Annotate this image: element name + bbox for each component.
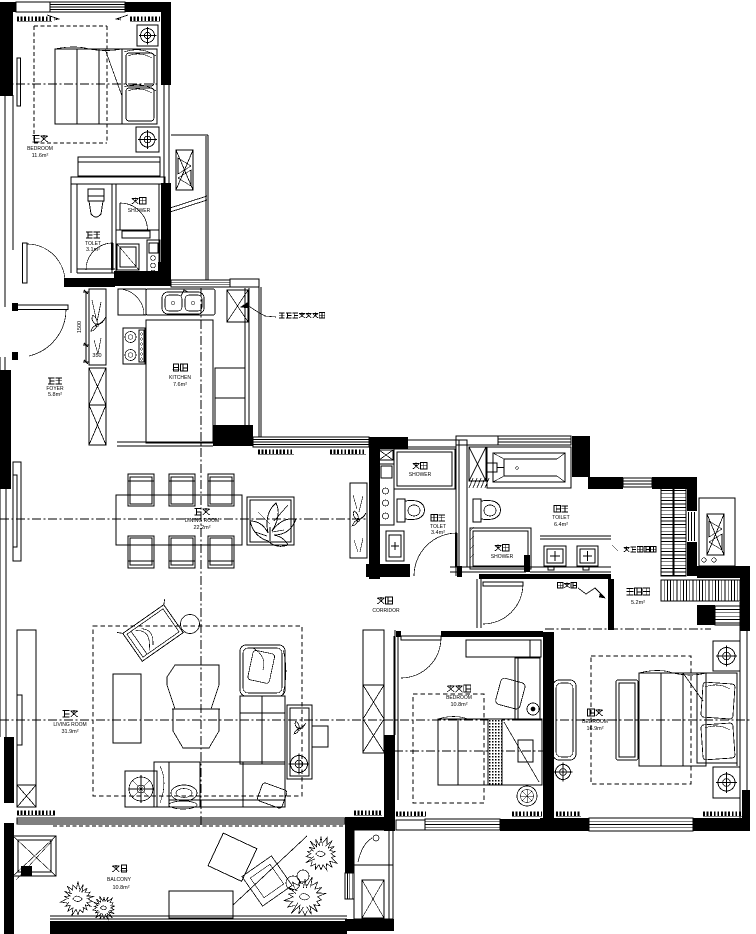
svg-text:3.4m²: 3.4m² <box>431 530 445 536</box>
svg-text:10.8m²: 10.8m² <box>450 702 467 708</box>
svg-text:7.6m²: 7.6m² <box>173 382 187 388</box>
svg-text:SHOWER: SHOWER <box>491 554 514 560</box>
svg-text:CORRIDOR: CORRIDOR <box>372 608 400 614</box>
svg-text:5.2m²: 5.2m² <box>631 600 645 606</box>
svg-text:SHOWER: SHOWER <box>409 472 432 478</box>
svg-text:LIVING ROOM: LIVING ROOM <box>53 722 86 728</box>
svg-text:5.8m²: 5.8m² <box>48 392 62 398</box>
svg-text:BALCONY: BALCONY <box>107 877 132 883</box>
svg-text:31.9m²: 31.9m² <box>61 729 78 735</box>
svg-text:10.8m²: 10.8m² <box>112 885 129 891</box>
svg-text:SHOWER: SHOWER <box>128 208 151 214</box>
svg-text:22.2m²: 22.2m² <box>193 525 210 531</box>
svg-text:BEDROOM: BEDROOM <box>582 719 608 725</box>
svg-text:BEDROOM: BEDROOM <box>27 146 53 152</box>
svg-text:KITCHEN: KITCHEN <box>169 375 191 381</box>
svg-text:350: 350 <box>92 353 101 359</box>
svg-text:16.9m²: 16.9m² <box>586 726 603 732</box>
svg-text:11.6m²: 11.6m² <box>32 153 49 159</box>
svg-text:DINING ROOM: DINING ROOM <box>185 518 219 524</box>
svg-text:3.1m²: 3.1m² <box>86 247 100 253</box>
svg-text:BEDROOM: BEDROOM <box>446 695 472 701</box>
svg-text:6.4m²: 6.4m² <box>554 522 568 528</box>
svg-text:TOILET: TOILET <box>552 515 569 521</box>
svg-text:1500: 1500 <box>77 321 83 333</box>
